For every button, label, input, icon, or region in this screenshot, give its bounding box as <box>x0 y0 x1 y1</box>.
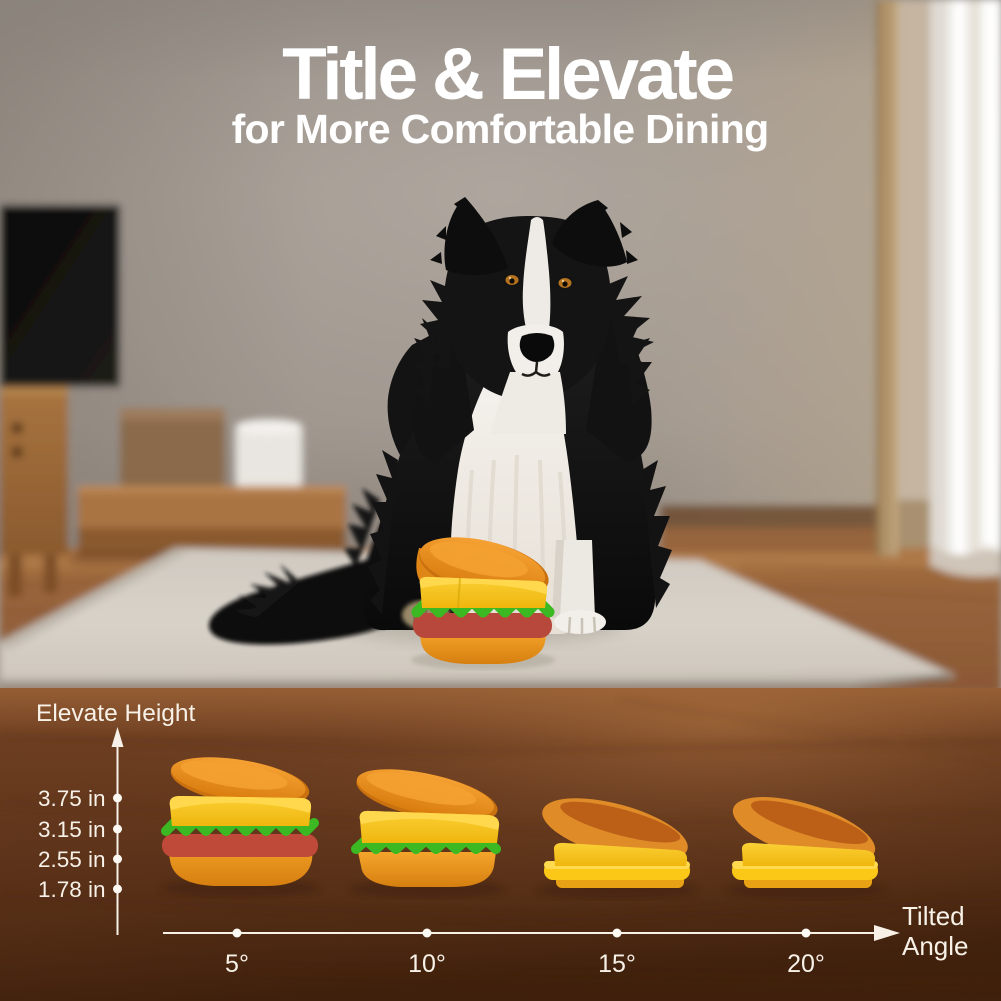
svg-text:20°: 20° <box>787 950 825 978</box>
svg-text:Elevate Height: Elevate Height <box>36 700 196 727</box>
svg-text:15°: 15° <box>598 950 636 978</box>
svg-text:Tilted: Tilted <box>902 901 965 931</box>
svg-text:3.75 in: 3.75 in <box>38 786 106 811</box>
svg-text:10°: 10° <box>408 950 446 978</box>
svg-text:Angle: Angle <box>902 931 969 961</box>
svg-text:2.55 in: 2.55 in <box>38 847 106 872</box>
svg-text:Title & Elevate: Title & Elevate <box>282 34 733 115</box>
svg-text:1.78 in: 1.78 in <box>38 877 106 902</box>
svg-text:for More Comfortable Dining: for More Comfortable Dining <box>232 106 769 152</box>
svg-text:3.15 in: 3.15 in <box>38 817 106 842</box>
svg-text:5°: 5° <box>225 950 249 978</box>
